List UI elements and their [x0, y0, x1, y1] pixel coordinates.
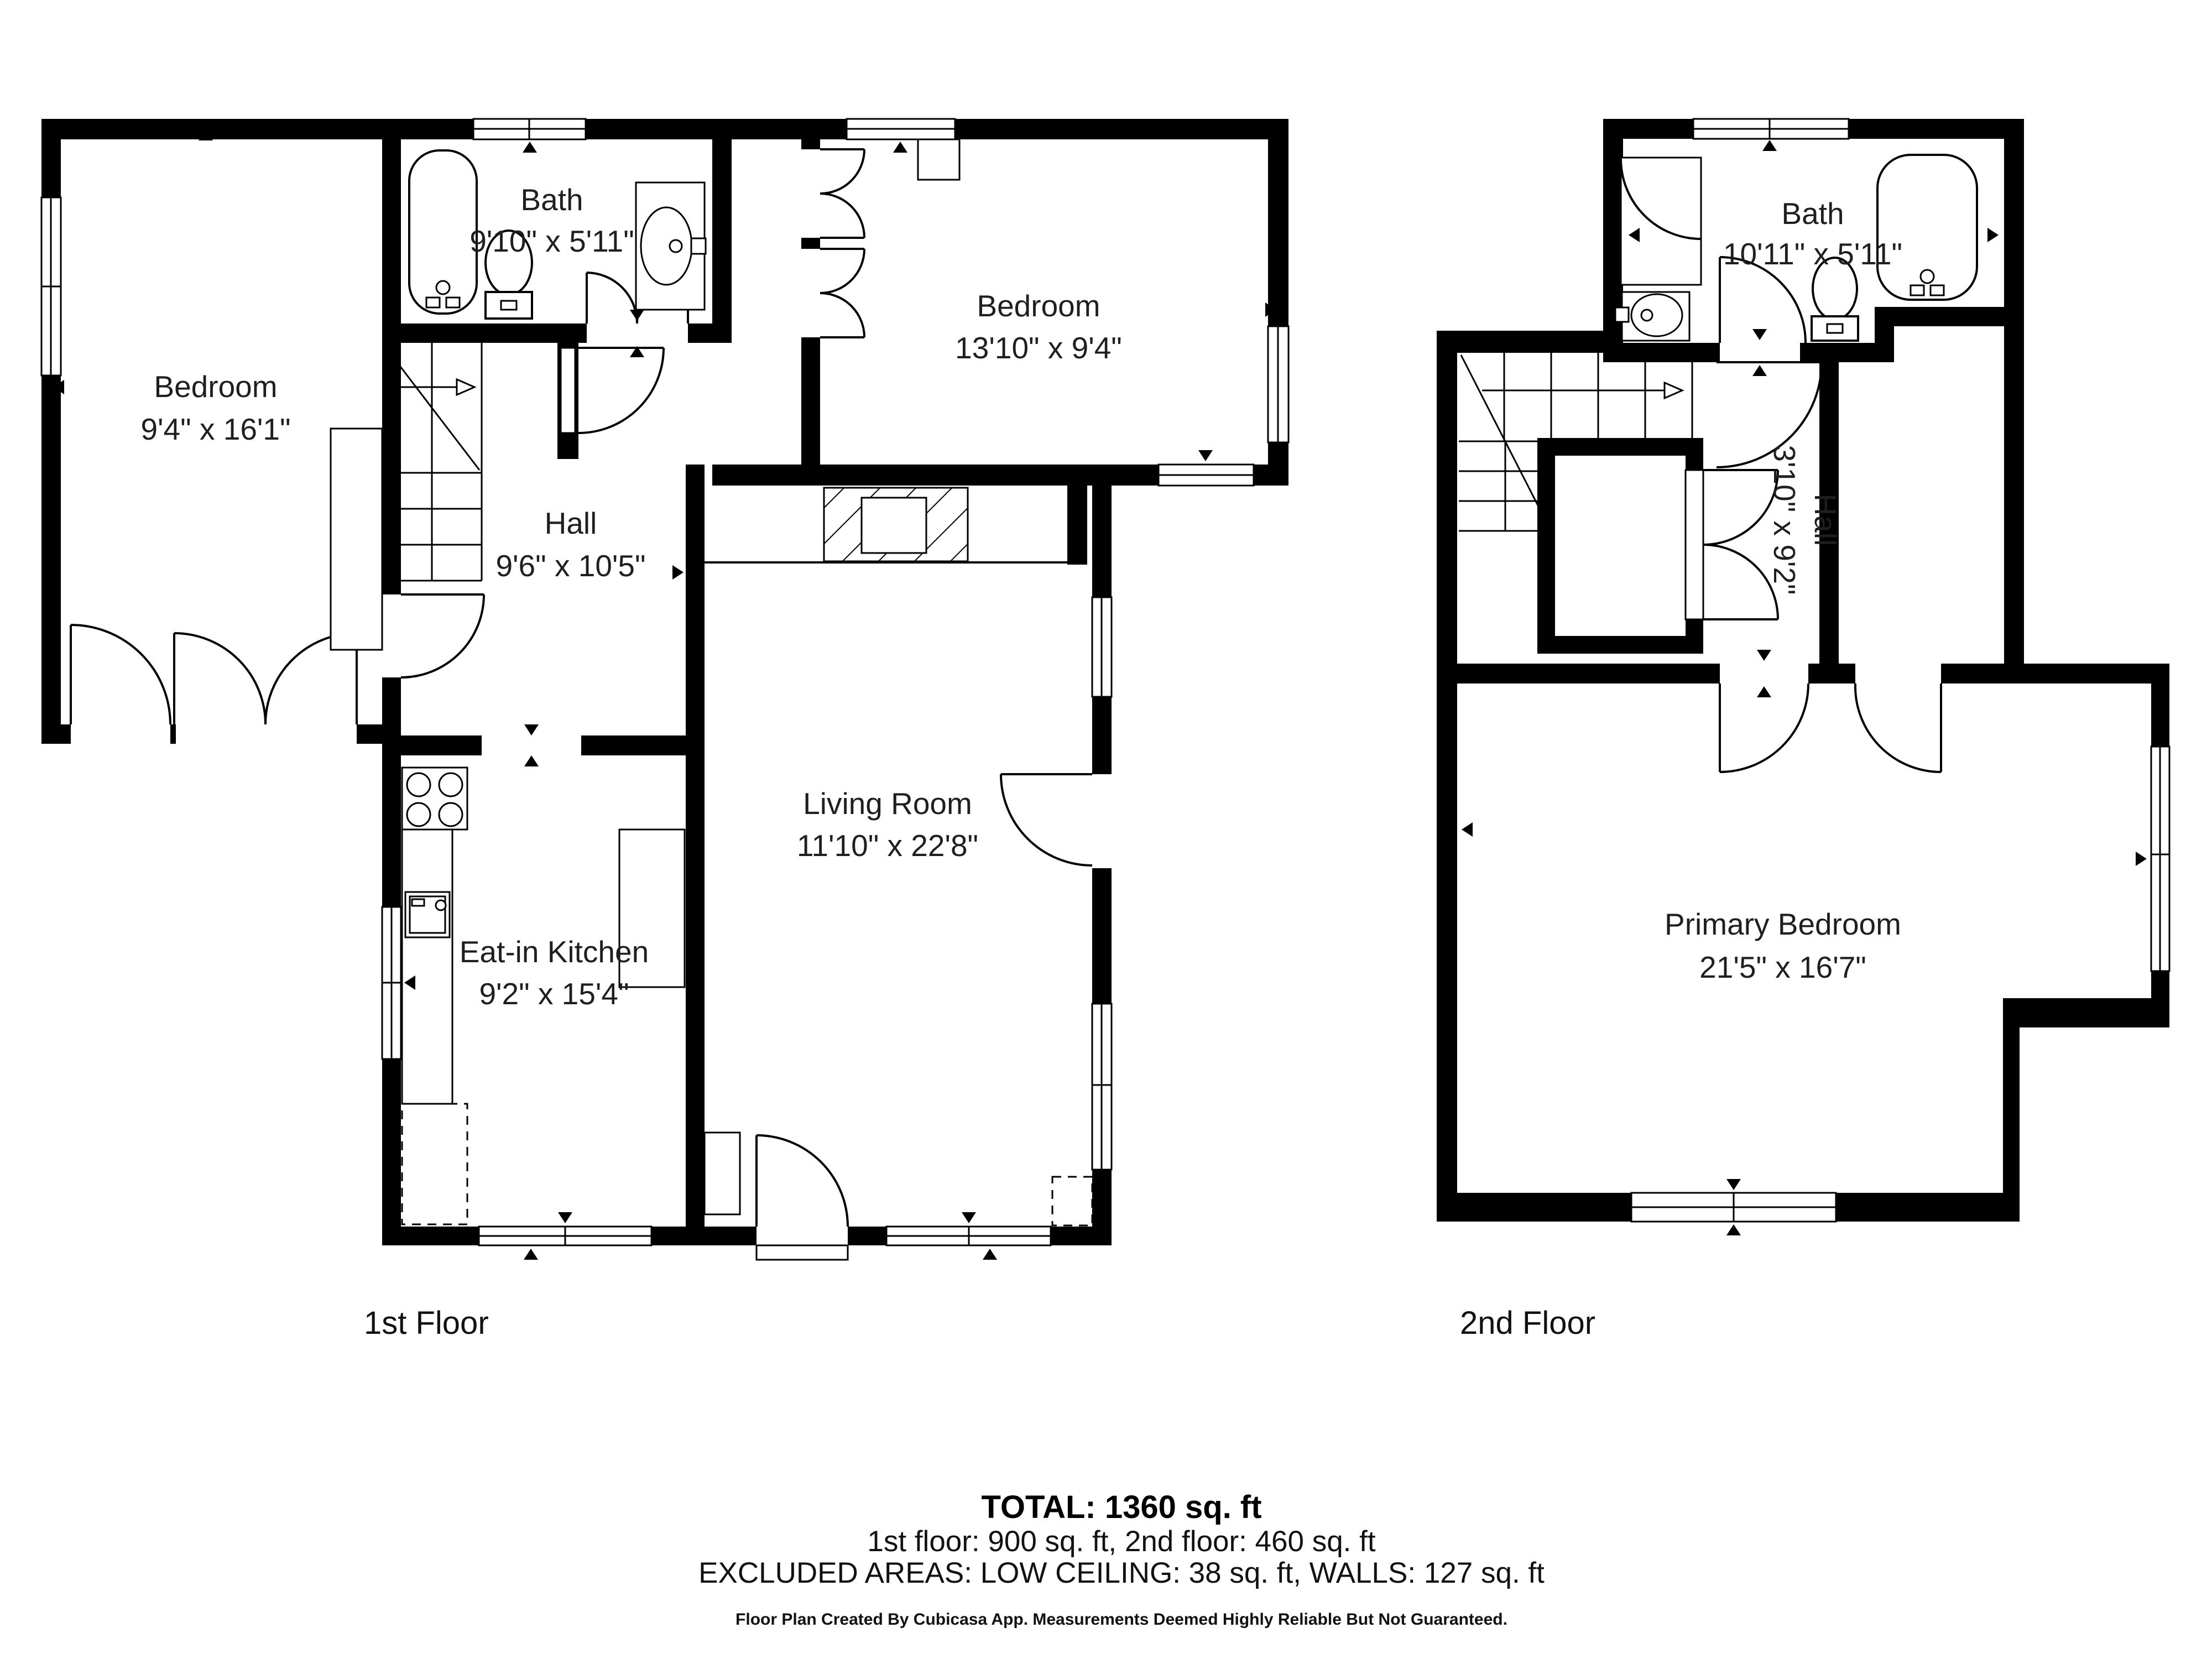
- summary-disclaimer: Floor Plan Created By Cubicasa App. Meas…: [735, 1610, 1507, 1629]
- room-label-kitchen: Eat-in Kitchen: [460, 935, 649, 969]
- room-label-bath1: Bath: [520, 182, 583, 217]
- summary-total: TOTAL: 1360 sq. ft: [981, 1489, 1261, 1525]
- window: [41, 197, 61, 375]
- front-door: [1001, 774, 1092, 865]
- second-floor-label: 2nd Floor: [1460, 1305, 1595, 1341]
- room-dims-bath2: 10'11" x 5'11": [1723, 237, 1902, 271]
- second-floor-plan: Bath 10'11" x 5'11" Hall 3'10" x 9'2" Pr…: [1437, 119, 2169, 1341]
- window: [1693, 119, 1849, 139]
- room-label-bedroom2: Bedroom: [977, 289, 1100, 323]
- room-dims-hall1: 9'6" x 10'5": [495, 549, 645, 583]
- window: [473, 119, 586, 139]
- room-label-hall1: Hall: [545, 506, 597, 540]
- floor-plan-page: Bedroom 9'4" x 16'1" Bath 9'10" x 5'11" …: [0, 0, 2212, 1659]
- room-dims-hall2: 3'10" x 9'2": [1767, 445, 1802, 594]
- closet-box: [1537, 438, 1703, 654]
- shower: [1621, 158, 1701, 285]
- window: [382, 907, 401, 1059]
- window: [1631, 1193, 1836, 1222]
- bedroom-box: [918, 139, 959, 180]
- room-label-bath2: Bath: [1781, 196, 1844, 231]
- room-dims-primary-bedroom: 21'5" x 16'7": [1699, 950, 1866, 984]
- first-floor-plan: Bedroom 9'4" x 16'1" Bath 9'10" x 5'11" …: [41, 119, 1288, 1341]
- room-dims-living: 11'10" x 22'8": [797, 828, 978, 863]
- bathtub: [1877, 155, 1977, 300]
- room-label-primary-bedroom: Primary Bedroom: [1665, 907, 1901, 941]
- window: [479, 1227, 651, 1245]
- room-dims-bedroom1: 9'4" x 16'1": [140, 412, 290, 446]
- refrigerator: [402, 1104, 467, 1224]
- stove: [402, 768, 467, 830]
- first-floor-label: 1st Floor: [364, 1305, 489, 1341]
- window: [886, 1227, 1051, 1245]
- window: [1092, 597, 1112, 697]
- floor-plan-canvas: Bedroom 9'4" x 16'1" Bath 9'10" x 5'11" …: [0, 0, 2212, 1659]
- second-floor-markers: [1462, 140, 2147, 1235]
- room-dims-bath1: 9'10" x 5'11": [469, 224, 634, 258]
- closet-double-door: [1703, 470, 1778, 619]
- first-floor-doors: [71, 149, 1092, 1260]
- window: [1268, 326, 1288, 442]
- closet-double-door: [820, 149, 864, 238]
- room-label-bedroom1: Bedroom: [154, 369, 277, 404]
- window: [1159, 465, 1254, 486]
- entry-door: [71, 625, 170, 724]
- sink-vanity: [636, 182, 706, 310]
- bathtub: [409, 150, 477, 314]
- room-dims-kitchen: 9'2" x 15'4": [479, 977, 629, 1011]
- bedroom-hall-door: [401, 594, 484, 677]
- double-door: [174, 633, 357, 724]
- summary-excluded: EXCLUDED AREAS: LOW CEILING: 38 sq. ft, …: [698, 1557, 1545, 1589]
- living-wall-unit: [705, 1133, 740, 1214]
- low-ceiling-area: [705, 488, 1067, 562]
- closet-double-door: [820, 249, 864, 337]
- summary-footer: TOTAL: 1360 sq. ft 1st floor: 900 sq. ft…: [698, 1489, 1545, 1629]
- back-door: [757, 1135, 848, 1260]
- summary-floors: 1st floor: 900 sq. ft, 2nd floor: 460 sq…: [867, 1525, 1375, 1558]
- window: [2151, 747, 2169, 971]
- kitchen-counter: [402, 830, 452, 1104]
- room-label-living: Living Room: [803, 786, 972, 821]
- floor-vent: [1052, 1177, 1092, 1225]
- room-dims-bedroom2: 13'10" x 9'4": [955, 331, 1122, 365]
- stairs-down-arrow: [1665, 383, 1682, 398]
- walkin-closet-door: [1855, 684, 1941, 772]
- wardrobe: [331, 429, 382, 650]
- kitchen-sink: [405, 892, 450, 937]
- window: [1092, 1004, 1112, 1170]
- second-floor-walls: [1437, 119, 2169, 1222]
- window: [847, 119, 955, 139]
- room-label-hall2: Hall: [1808, 494, 1843, 546]
- stairs-up-arrow: [457, 379, 474, 395]
- sink-vanity: [1615, 292, 1689, 341]
